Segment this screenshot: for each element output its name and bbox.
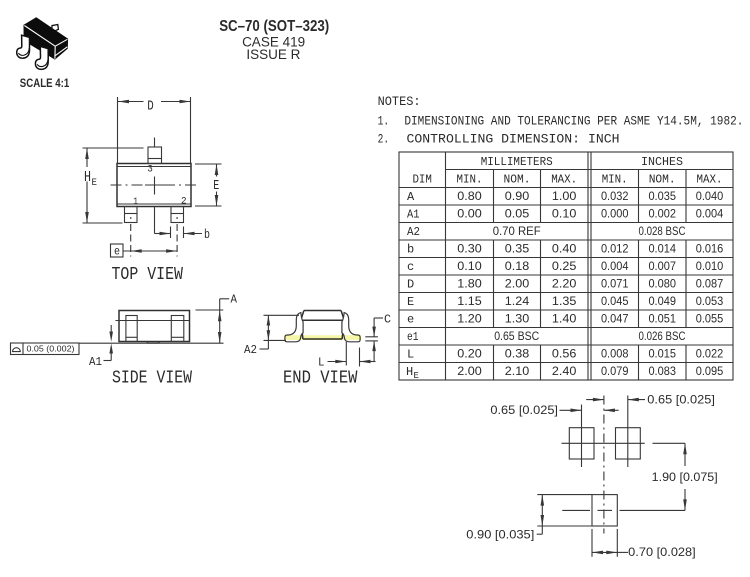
svg-text:0.087: 0.087 bbox=[696, 277, 724, 291]
svg-text:0.65 [0.025]: 0.65 [0.025] bbox=[490, 403, 558, 417]
svg-text:2.00: 2.00 bbox=[457, 364, 482, 378]
svg-text:0.071: 0.071 bbox=[601, 277, 629, 291]
svg-text:0.56: 0.56 bbox=[552, 347, 577, 361]
svg-text:MAX.: MAX. bbox=[697, 172, 723, 186]
svg-text:e: e bbox=[114, 245, 120, 259]
svg-text:1.35: 1.35 bbox=[552, 294, 577, 308]
svg-text:0.014: 0.014 bbox=[648, 242, 676, 256]
svg-text:0.70 [0.028]: 0.70 [0.028] bbox=[628, 545, 696, 559]
svg-text:H: H bbox=[406, 365, 413, 379]
svg-text:A2: A2 bbox=[244, 343, 257, 357]
svg-text:E: E bbox=[92, 177, 98, 189]
svg-text:0.65 BSC: 0.65 BSC bbox=[494, 329, 539, 343]
svg-text:L: L bbox=[407, 348, 414, 362]
svg-text:2.00: 2.00 bbox=[505, 277, 530, 291]
svg-text:A: A bbox=[407, 190, 415, 204]
svg-text:b: b bbox=[407, 243, 414, 257]
svg-text:0.079: 0.079 bbox=[601, 364, 629, 378]
svg-text:2.20: 2.20 bbox=[552, 277, 577, 291]
svg-text:1.00: 1.00 bbox=[552, 189, 577, 203]
svg-text:0.35: 0.35 bbox=[505, 242, 530, 256]
svg-text:NOM.: NOM. bbox=[649, 172, 676, 186]
svg-text:0.055: 0.055 bbox=[696, 312, 724, 326]
svg-text:e1: e1 bbox=[407, 330, 419, 344]
svg-text:0.18: 0.18 bbox=[505, 259, 530, 273]
svg-text:2.: 2. bbox=[378, 132, 390, 147]
svg-text:CONTROLLING DIMENSION: INCH: CONTROLLING DIMENSION: INCH bbox=[407, 132, 620, 147]
svg-text:0.05: 0.05 bbox=[505, 207, 530, 221]
svg-text:e: e bbox=[407, 313, 414, 327]
svg-text:A1: A1 bbox=[407, 208, 420, 222]
svg-text:0.004: 0.004 bbox=[696, 207, 724, 221]
svg-text:A2: A2 bbox=[407, 225, 420, 239]
svg-text:0.90 [0.035]: 0.90 [0.035] bbox=[466, 528, 534, 542]
svg-text:1: 1 bbox=[133, 196, 138, 208]
svg-text:C: C bbox=[384, 313, 391, 327]
svg-text:NOTES:: NOTES: bbox=[378, 94, 421, 109]
svg-text:ISSUE R: ISSUE R bbox=[246, 47, 300, 62]
svg-text:L: L bbox=[318, 355, 325, 369]
svg-text:1.40: 1.40 bbox=[552, 312, 577, 326]
svg-text:DIMENSIONING AND TOLERANCING P: DIMENSIONING AND TOLERANCING PER ASME Y1… bbox=[404, 114, 743, 129]
svg-text:2.40: 2.40 bbox=[552, 364, 577, 378]
svg-text:INCHES: INCHES bbox=[641, 155, 683, 169]
svg-text:0.016: 0.016 bbox=[696, 242, 724, 256]
svg-text:2.10: 2.10 bbox=[505, 364, 530, 378]
svg-text:0.053: 0.053 bbox=[696, 294, 724, 308]
svg-text:0.015: 0.015 bbox=[648, 347, 676, 361]
svg-text:0.095: 0.095 bbox=[696, 364, 724, 378]
svg-text:MAX.: MAX. bbox=[551, 172, 577, 186]
svg-text:0.002: 0.002 bbox=[648, 207, 676, 221]
svg-text:c: c bbox=[407, 260, 414, 274]
svg-text:0.080: 0.080 bbox=[648, 277, 676, 291]
svg-text:E: E bbox=[213, 179, 219, 194]
svg-text:0.10: 0.10 bbox=[552, 207, 577, 221]
svg-text:1.24: 1.24 bbox=[505, 294, 530, 308]
svg-text:0.008: 0.008 bbox=[601, 347, 629, 361]
svg-text:0.80: 0.80 bbox=[457, 189, 482, 203]
svg-text:0.022: 0.022 bbox=[696, 347, 724, 361]
svg-text:D: D bbox=[147, 100, 154, 115]
svg-text:0.65 [0.025]: 0.65 [0.025] bbox=[647, 393, 715, 407]
svg-text:0.040: 0.040 bbox=[696, 189, 724, 203]
svg-text:0.045: 0.045 bbox=[601, 294, 629, 308]
svg-text:3: 3 bbox=[147, 164, 153, 176]
svg-text:0.05 (0.002): 0.05 (0.002) bbox=[27, 344, 75, 353]
svg-text:1.30: 1.30 bbox=[505, 312, 530, 326]
svg-text:0.20: 0.20 bbox=[457, 347, 482, 361]
svg-text:D: D bbox=[407, 278, 414, 292]
svg-text:0.032: 0.032 bbox=[601, 189, 629, 203]
svg-text:TOP VIEW: TOP VIEW bbox=[112, 265, 184, 285]
svg-text:NOM.: NOM. bbox=[504, 172, 531, 186]
svg-text:SC–70 (SOT–323): SC–70 (SOT–323) bbox=[219, 18, 329, 35]
svg-text:0.028 BSC: 0.028 BSC bbox=[639, 224, 686, 238]
svg-text:H: H bbox=[84, 170, 91, 186]
svg-text:0.026 BSC: 0.026 BSC bbox=[639, 329, 686, 343]
svg-text:A: A bbox=[231, 293, 238, 307]
svg-text:0.047: 0.047 bbox=[601, 312, 629, 326]
svg-text:1.: 1. bbox=[378, 114, 390, 129]
svg-text:1.20: 1.20 bbox=[457, 312, 482, 326]
svg-text:A1: A1 bbox=[89, 355, 102, 369]
svg-text:SIDE VIEW: SIDE VIEW bbox=[112, 369, 192, 389]
svg-text:b: b bbox=[204, 228, 210, 242]
svg-text:0.00: 0.00 bbox=[457, 207, 482, 221]
svg-text:1.80: 1.80 bbox=[457, 277, 482, 291]
svg-text:0.051: 0.051 bbox=[648, 312, 676, 326]
svg-text:MIN.: MIN. bbox=[457, 172, 483, 186]
svg-text:SCALE 4:1: SCALE 4:1 bbox=[20, 78, 70, 90]
svg-text:1.90 [0.075]: 1.90 [0.075] bbox=[652, 470, 718, 484]
svg-text:0.38: 0.38 bbox=[505, 347, 530, 361]
svg-text:END VIEW: END VIEW bbox=[283, 369, 358, 389]
svg-text:0.70 REF: 0.70 REF bbox=[493, 224, 541, 238]
svg-text:MIN.: MIN. bbox=[602, 172, 628, 186]
svg-text:0.004: 0.004 bbox=[601, 259, 629, 273]
svg-text:MILLIMETERS: MILLIMETERS bbox=[481, 155, 553, 169]
svg-text:0.007: 0.007 bbox=[648, 259, 676, 273]
svg-text:0.40: 0.40 bbox=[552, 242, 577, 256]
svg-text:0.010: 0.010 bbox=[696, 259, 724, 273]
svg-text:0.035: 0.035 bbox=[648, 189, 676, 203]
svg-text:DIM: DIM bbox=[412, 172, 432, 186]
svg-text:0.25: 0.25 bbox=[552, 259, 577, 273]
svg-text:E: E bbox=[414, 371, 419, 381]
svg-text:0.90: 0.90 bbox=[505, 189, 530, 203]
svg-text:0.10: 0.10 bbox=[457, 259, 482, 273]
svg-text:E: E bbox=[407, 295, 414, 309]
svg-text:0.083: 0.083 bbox=[648, 364, 676, 378]
svg-text:0.000: 0.000 bbox=[601, 207, 629, 221]
svg-text:0.012: 0.012 bbox=[601, 242, 629, 256]
svg-text:0.049: 0.049 bbox=[648, 294, 676, 308]
svg-text:2: 2 bbox=[181, 195, 187, 207]
svg-text:1.15: 1.15 bbox=[457, 294, 482, 308]
svg-text:0.30: 0.30 bbox=[457, 242, 482, 256]
